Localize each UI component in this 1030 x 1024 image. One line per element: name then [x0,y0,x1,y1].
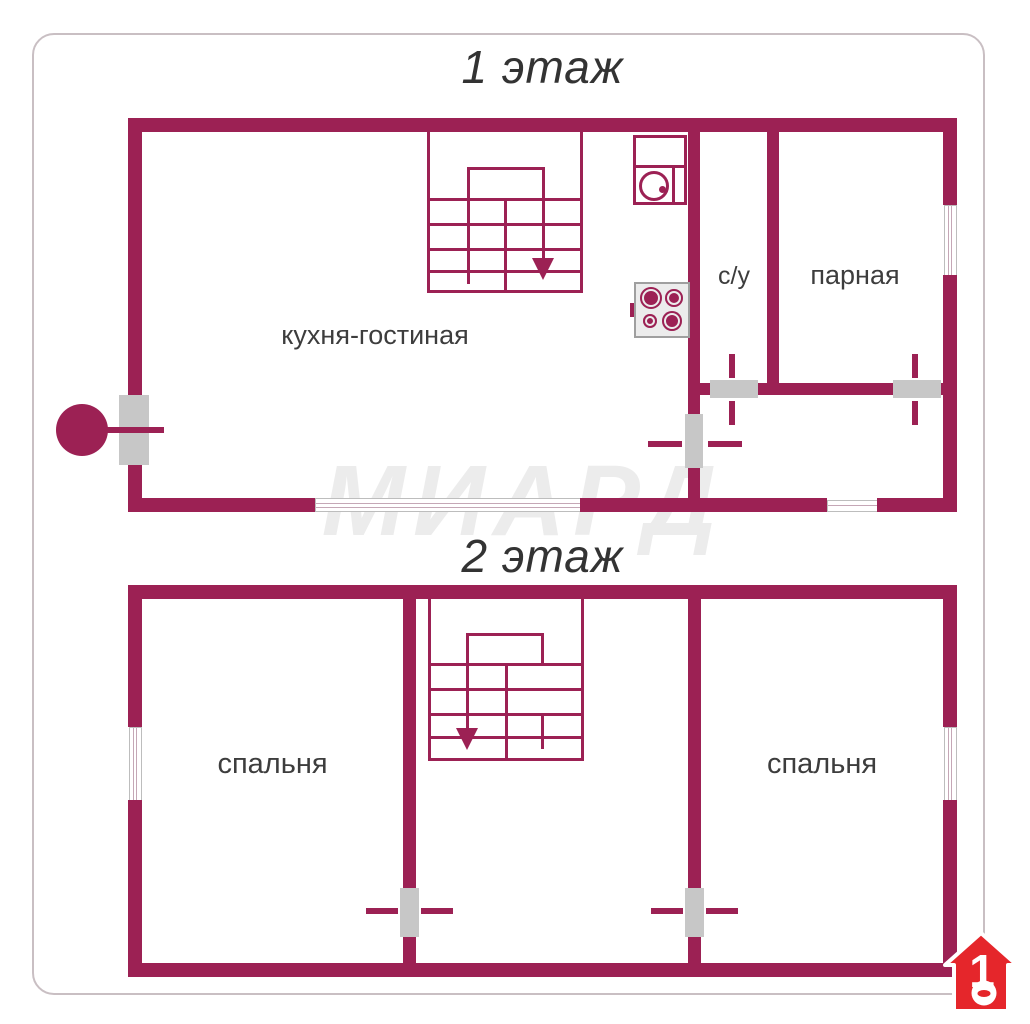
sink-drain [659,186,666,193]
door-swing-mark [706,908,738,914]
stairs-down-arrow [456,728,478,750]
stove-burner [643,314,657,328]
door-opening [685,414,703,468]
room-label-kitchen-living: кухня-гостиная [175,322,575,349]
floor2-interior-wall [403,937,416,963]
stair-arrow-stem [542,198,545,262]
stove-icon [634,282,690,338]
floor1-hallway-wall [941,383,957,395]
window-pane-line [133,728,134,801]
door-opening [400,888,419,937]
door-swing-mark [729,354,735,378]
stair-line [467,167,470,201]
stairs-icon [428,599,584,761]
window-pane-line [136,728,137,801]
stair-line [504,198,507,293]
floor1-bottom-wall [128,498,315,512]
room-label-steam-room: парная [779,262,931,289]
stair-line [541,713,544,749]
floorplan-page: МИАРД 1 этаж [0,0,1030,1024]
room-label-bedroom-right: спальня [701,750,943,779]
floor2-interior-wall [403,599,416,888]
floor2-top-wall [128,585,957,599]
stair-line [467,167,545,170]
window-pane-line [828,505,878,506]
floor2-interior-wall [688,937,701,963]
floor1-right-wall [943,118,957,205]
floor2-right-wall [943,585,957,727]
door-swing-mark [912,401,918,425]
floor2-bottom-wall [128,963,957,977]
floor2-interior-wall [688,599,701,888]
stove-burner [662,311,682,331]
window [315,498,582,512]
floor1-hallway-wall [688,383,710,395]
door-opening [685,888,704,937]
door-swing-mark [651,908,683,914]
floor1-left-wall [128,118,142,395]
stairs-down-arrow [532,258,554,280]
floor2-title: 2 этаж [128,531,957,582]
floor1-title: 1 этаж [128,42,957,93]
window-pane-line [948,206,949,276]
window [827,500,879,512]
door-swing-mark [648,441,682,447]
room-label-bathroom: с/у [700,264,768,289]
agency-logo: 1 [942,930,1020,1014]
window-pane-line [316,507,581,508]
stove-burner [640,287,662,309]
floorplans: 1 этаж [0,0,1030,1024]
floor1-interior-wall [688,132,700,414]
door-swing-mark [421,908,453,914]
sink-icon [633,135,687,205]
stairs-icon [427,132,583,293]
stair-arrow-stem [466,663,469,729]
window [129,727,142,802]
floor1-bottom-wall [580,498,827,512]
sink-counter-line [636,165,684,168]
window [944,727,957,802]
door-swing-mark [708,441,742,447]
stair-line [542,167,545,201]
door-swing-mark [912,354,918,378]
window-pane-line [951,206,952,276]
stair-line [505,663,508,761]
entrance-door-line [82,427,164,433]
logo-key-slot [978,990,991,997]
window-pane-line [316,503,581,504]
stair-line [541,633,544,666]
floor1-interior-wall [767,132,779,388]
stair-line [580,132,583,293]
floor1-left-wall [128,465,142,512]
floor1-top-wall [128,118,957,132]
floor1-interior-wall [688,468,700,499]
window-pane-line [948,728,949,801]
window [944,205,957,277]
floor2-left-wall [128,800,142,977]
window-pane-line [951,728,952,801]
room-label-bedroom-left: спальня [142,750,403,779]
door-swing-mark [366,908,398,914]
door-opening [710,380,758,398]
door-swing-mark [729,401,735,425]
door-opening [893,380,941,398]
floor2-left-wall [128,585,142,727]
stove-burner [665,289,683,307]
floor1-hallway-wall [758,383,893,395]
stair-line [467,198,470,284]
stair-line [466,633,469,666]
stair-line [466,633,544,636]
sink-counter-line [672,165,675,202]
stove-handle [630,303,634,317]
stair-line [427,132,430,293]
